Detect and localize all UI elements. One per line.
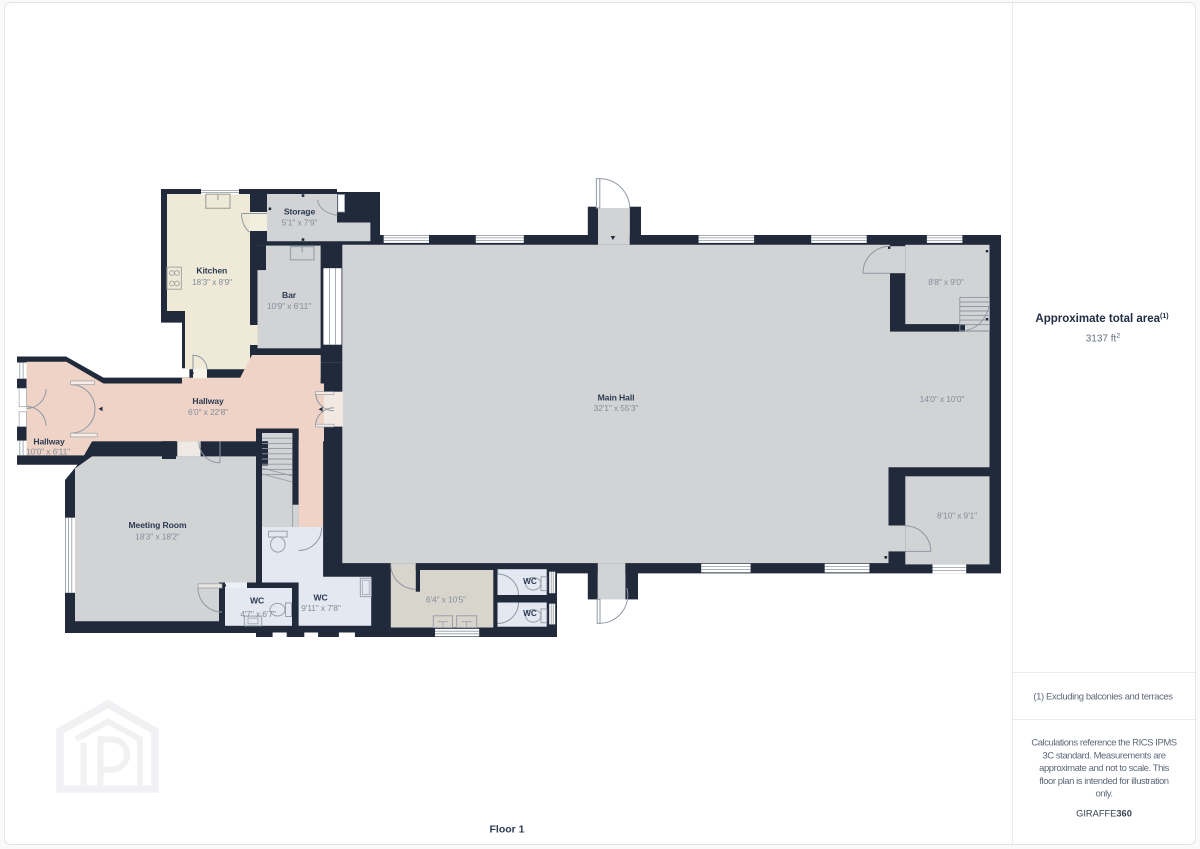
svg-text:WC: WC <box>313 593 327 603</box>
svg-text:only.: only. <box>1095 789 1112 800</box>
svg-text:WC: WC <box>523 609 537 618</box>
svg-text:Floor 1: Floor 1 <box>489 824 524 836</box>
svg-text:Hallway: Hallway <box>33 437 65 447</box>
svg-text:Storage: Storage <box>284 207 316 217</box>
svg-text:Hallway: Hallway <box>192 396 224 406</box>
svg-text:Approximate total area(1): Approximate total area(1) <box>1035 313 1168 325</box>
svg-text:32'1" x 55'3": 32'1" x 55'3" <box>594 403 639 413</box>
svg-text:floor plan is intended for ill: floor plan is intended for illustration <box>1039 776 1168 787</box>
svg-text:10'0" x 6'11": 10'0" x 6'11" <box>26 447 70 457</box>
svg-text:4'7" x 6'7": 4'7" x 6'7" <box>240 609 276 619</box>
svg-text:WC: WC <box>250 596 264 606</box>
svg-text:14'0" x 10'0": 14'0" x 10'0" <box>920 394 965 404</box>
svg-text:18'3" x 8'9": 18'3" x 8'9" <box>192 277 232 287</box>
svg-text:6'4" x 10'5": 6'4" x 10'5" <box>426 595 466 605</box>
svg-text:Main Hall: Main Hall <box>598 393 635 403</box>
svg-text:approximate and not to scale.: approximate and not to scale. This <box>1039 763 1169 774</box>
svg-text:8'10" x 9'1": 8'10" x 9'1" <box>937 511 977 521</box>
svg-text:5'1" x 7'9": 5'1" x 7'9" <box>282 218 318 228</box>
svg-text:GIRAFFE360: GIRAFFE360 <box>1076 809 1132 819</box>
svg-text:6'0" x 22'8": 6'0" x 22'8" <box>188 407 228 417</box>
svg-text:3C standard. Measurements are: 3C standard. Measurements are <box>1042 750 1165 761</box>
svg-text:10'9" x 6'11": 10'9" x 6'11" <box>267 301 311 311</box>
svg-text:Kitchen: Kitchen <box>196 266 227 276</box>
svg-text:Calculations reference the RIC: Calculations reference the RICS IPMS <box>1031 738 1176 749</box>
svg-text:18'3" x 18'2": 18'3" x 18'2" <box>135 531 180 541</box>
svg-text:8'8" x 9'0": 8'8" x 9'0" <box>928 277 964 287</box>
svg-text:Bar: Bar <box>282 290 297 300</box>
svg-text:Meeting Room: Meeting Room <box>129 520 187 530</box>
svg-text:9'11" x 7'8": 9'11" x 7'8" <box>301 603 341 613</box>
svg-text:(1) Excluding balconies and te: (1) Excluding balconies and terraces <box>1033 692 1173 703</box>
svg-text:WC: WC <box>523 577 537 586</box>
svg-text:3137 ft2: 3137 ft2 <box>1086 333 1121 345</box>
